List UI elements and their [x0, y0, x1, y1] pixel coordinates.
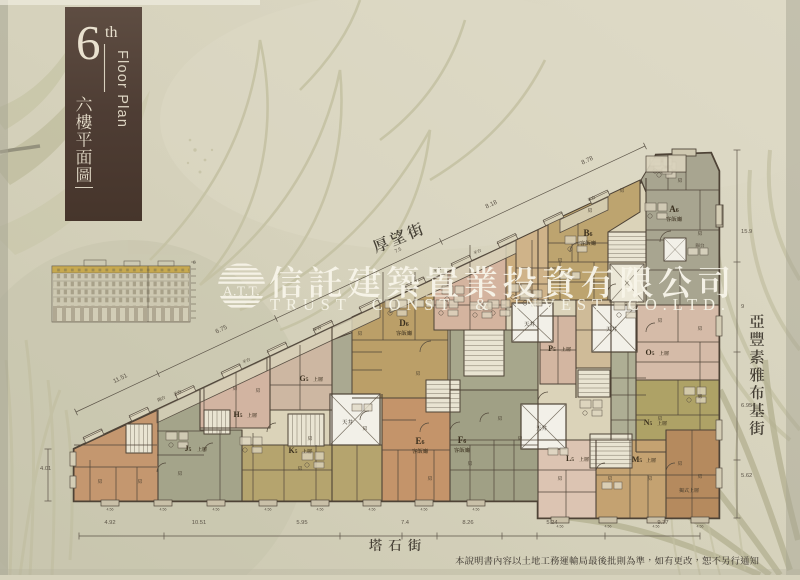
svg-text:9: 9 [741, 304, 744, 310]
svg-text:7.4: 7.4 [401, 520, 410, 526]
svg-text:A.T.T.: A.T.T. [223, 284, 260, 299]
svg-text:Floor Plan: Floor Plan [114, 50, 130, 128]
svg-text:4.56: 4.56 [107, 508, 114, 512]
svg-text:4.56: 4.56 [473, 508, 480, 512]
svg-text:15.9: 15.9 [741, 229, 752, 235]
svg-text:6: 6 [76, 15, 101, 70]
svg-text:9.77: 9.77 [657, 520, 668, 526]
svg-text:4.56: 4.56 [160, 508, 167, 512]
svg-text:6.95: 6.95 [741, 403, 752, 409]
svg-text:4.56: 4.56 [605, 525, 612, 529]
svg-text:4.56: 4.56 [369, 508, 376, 512]
svg-text:8.26: 8.26 [462, 520, 473, 526]
svg-text:4.56: 4.56 [265, 508, 272, 512]
svg-text:4.01: 4.01 [40, 466, 51, 472]
svg-text:th: th [105, 24, 117, 41]
svg-text:10.51: 10.51 [192, 520, 207, 526]
svg-text:4.56: 4.56 [697, 525, 704, 529]
svg-text:TRUST CONST & INVEST CO.LT: TRUST CONST & INVEST CO.LTD. [270, 295, 728, 314]
svg-text:4.56: 4.56 [421, 508, 428, 512]
svg-text:4.56: 4.56 [213, 508, 220, 512]
svg-text:5.24: 5.24 [546, 520, 558, 526]
svg-text:5.62: 5.62 [741, 473, 752, 479]
svg-text:5.95: 5.95 [296, 520, 307, 526]
svg-text:4.92: 4.92 [104, 520, 115, 526]
svg-text:4.56: 4.56 [317, 508, 324, 512]
